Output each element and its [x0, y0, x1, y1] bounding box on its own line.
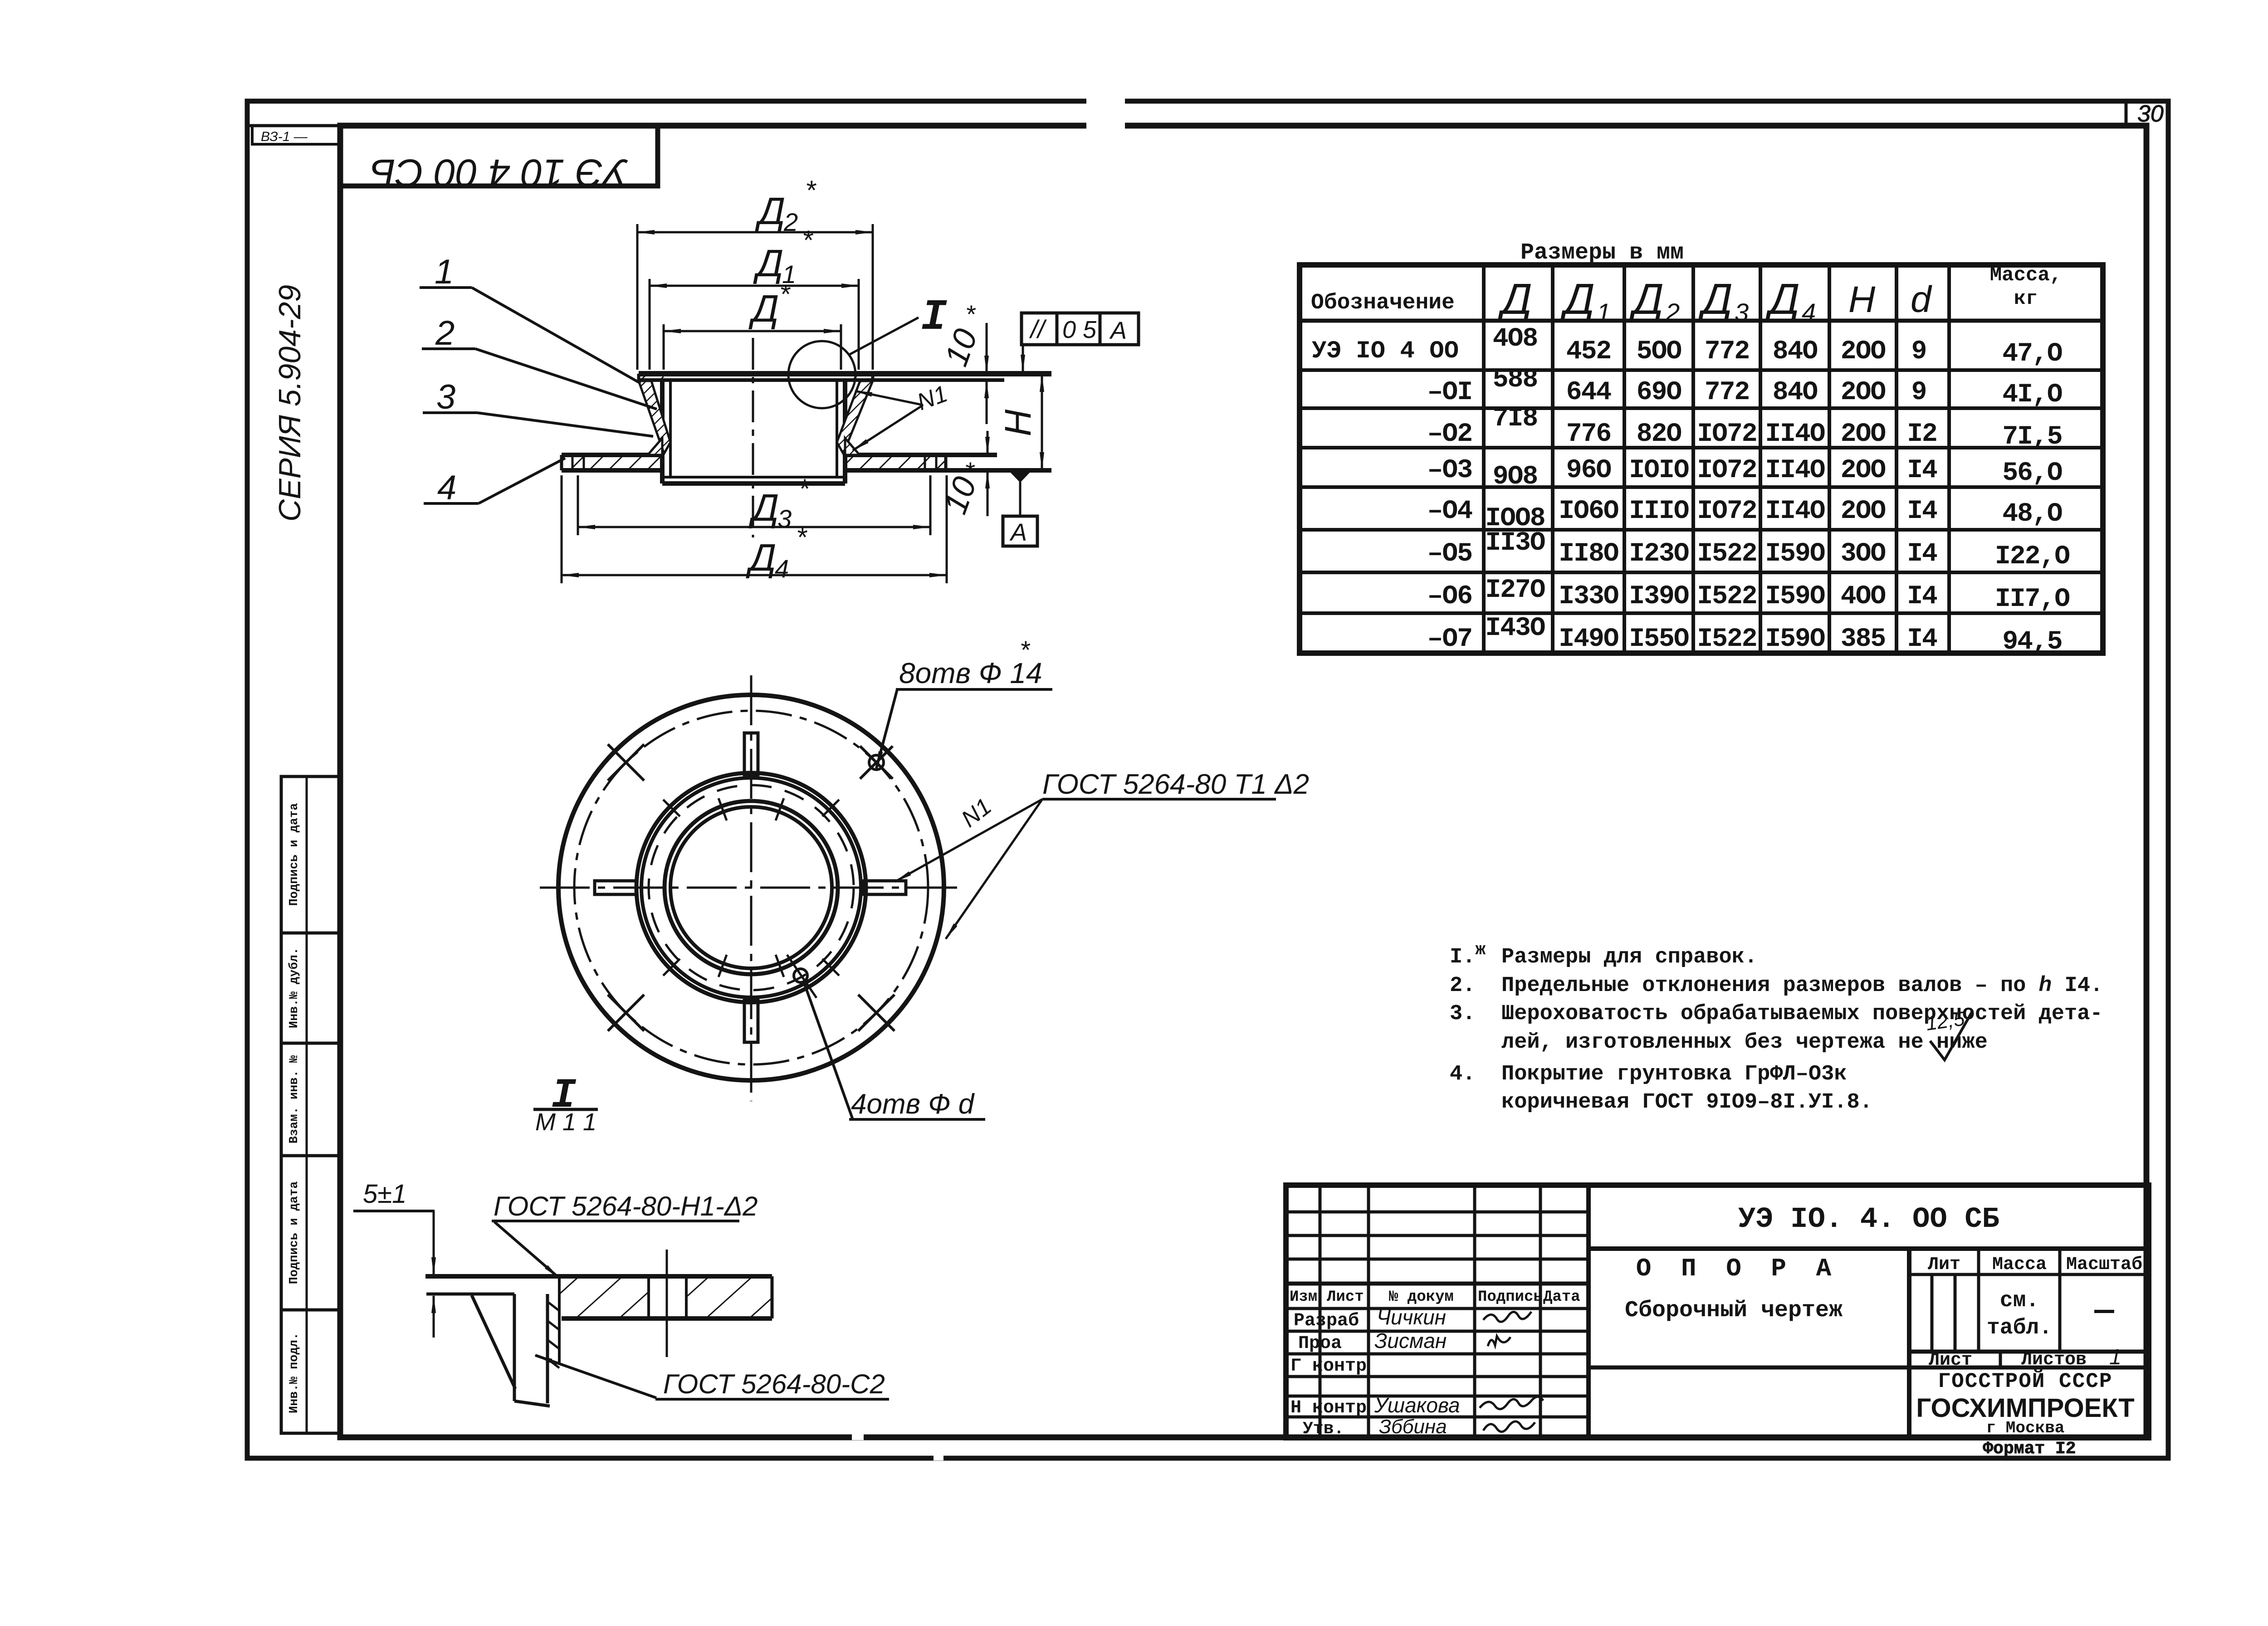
svg-text:—: — [2094, 1293, 2114, 1330]
svg-text:*: * [802, 225, 813, 255]
svg-text://: // [1029, 315, 1047, 343]
svg-text:2.: 2. [1450, 974, 1475, 998]
svg-text:2ОО: 2ОО [1841, 456, 1886, 485]
svg-text:Обозначение: Обозначение [1311, 291, 1455, 315]
svg-text:*: * [805, 175, 816, 205]
svg-text:I2: I2 [1907, 420, 1937, 449]
svg-text:А: А [1109, 317, 1127, 344]
svg-text:772: 772 [1705, 337, 1749, 366]
svg-text:Лист: Лист [1929, 1350, 1972, 1371]
svg-text:Д: Д [753, 242, 783, 284]
svg-text:I.ж: I.ж [1450, 940, 1486, 969]
svg-text:2: 2 [783, 208, 798, 236]
svg-text:1: 1 [2109, 1345, 2121, 1369]
svg-text:2ОО: 2ОО [1841, 337, 1886, 366]
svg-text:I522: I522 [1697, 625, 1756, 654]
svg-text:2: 2 [1665, 298, 1680, 327]
svg-text:I43О: I43О [1485, 614, 1545, 643]
svg-text:II7,О: II7,О [1995, 585, 2069, 614]
svg-text:Н: Н [1848, 279, 1876, 320]
svg-text:Сборочный чертеж: Сборочный чертеж [1625, 1298, 1843, 1323]
svg-text:84О: 84О [1773, 378, 1818, 407]
svg-text:Зббина: Зббина [1379, 1416, 1447, 1438]
svg-text:Предельные отклонения размеров: Предельные отклонения размеров валов – п… [1501, 972, 2103, 998]
svg-text:7I8: 7I8 [1493, 404, 1537, 434]
svg-text:4: 4 [775, 554, 789, 583]
svg-text:СЕРИЯ 5.904-29: СЕРИЯ 5.904-29 [273, 285, 307, 522]
svg-text:II8О: II8О [1559, 539, 1618, 569]
svg-text:Зисман: Зисман [1374, 1329, 1447, 1353]
svg-text:4О8: 4О8 [1493, 324, 1537, 354]
svg-text:кг: кг [2014, 288, 2038, 310]
svg-text:2ОО: 2ОО [1841, 420, 1886, 449]
svg-text:47,О: 47,О [2002, 339, 2062, 369]
svg-text:УЭ 10 4 00 СБ: УЭ 10 4 00 СБ [370, 151, 628, 195]
svg-text:–О3: –О3 [1427, 456, 1472, 485]
svg-text:I59О: I59О [1765, 539, 1824, 569]
svg-text:*: * [1020, 635, 1031, 664]
svg-text:I27О: I27О [1485, 576, 1545, 605]
svg-text:IОIО: IОIО [1629, 456, 1688, 485]
svg-text:82О: 82О [1637, 420, 1681, 449]
svg-text:Проа: Проа [1298, 1333, 1342, 1354]
svg-text:0 5: 0 5 [1062, 316, 1097, 343]
svg-text:48,О: 48,О [2002, 499, 2062, 529]
svg-text:d: d [1911, 279, 1932, 320]
svg-text:I4: I4 [1907, 456, 1937, 485]
svg-text:N1: N1 [914, 381, 951, 415]
svg-text:Покрытие грунтовка ГрФЛ–О3к: Покрытие грунтовка ГрФЛ–О3к [1501, 1062, 1847, 1086]
svg-text:10: 10 [937, 472, 984, 519]
svg-text:табл.: табл. [1987, 1316, 2052, 1340]
svg-text:Д: Д [1629, 275, 1664, 323]
svg-text:Чичкин: Чичкин [1377, 1305, 1446, 1329]
svg-text:Инв.№ дубл.: Инв.№ дубл. [288, 947, 301, 1028]
svg-text:2ОО: 2ОО [1841, 378, 1886, 407]
svg-text:1: 1 [435, 253, 454, 291]
svg-text:4: 4 [1802, 298, 1816, 327]
svg-text:I23О: I23О [1629, 539, 1688, 569]
svg-text:Д: Д [1698, 275, 1733, 323]
svg-text:Размеры для справок.: Размеры для справок. [1501, 945, 1757, 969]
svg-text:9: 9 [1911, 378, 1926, 407]
svg-text:9: 9 [1911, 337, 1926, 366]
svg-text:Формат I2: Формат I2 [1983, 1439, 2076, 1459]
svg-text:см.: см. [2000, 1289, 2039, 1313]
svg-text:*: * [798, 474, 810, 504]
svg-text:4.: 4. [1450, 1062, 1475, 1086]
svg-text:Шероховатость обрабатываемых п: Шероховатость обрабатываемых поверхносте… [1501, 1002, 2103, 1026]
svg-text:№ докум: № докум [1389, 1289, 1454, 1306]
svg-text:IО6О: IО6О [1559, 497, 1618, 526]
svg-text:Размеры в мм: Размеры в мм [1520, 240, 1684, 266]
svg-text:*: * [964, 457, 975, 485]
svg-text:Разраб: Разраб [1294, 1311, 1359, 1331]
svg-text:Д: Д [746, 536, 776, 579]
svg-text:Масса,: Масса, [1990, 264, 2062, 287]
svg-text:ГОСТ 5264-80 Т1 Δ2: ГОСТ 5264-80 Т1 Δ2 [1042, 769, 1309, 800]
svg-text:II4О: II4О [1765, 497, 1824, 526]
svg-text:ГОСТ 5264-80-Н1-Δ2: ГОСТ 5264-80-Н1-Δ2 [494, 1191, 758, 1221]
svg-text:9О8: 9О8 [1493, 462, 1537, 492]
svg-text:5ОО: 5ОО [1637, 337, 1681, 366]
svg-text:М 1 1: М 1 1 [535, 1108, 596, 1136]
svg-text:Д: Д [748, 486, 779, 529]
svg-text:385: 385 [1841, 625, 1885, 654]
svg-text:I4: I4 [1907, 539, 1937, 569]
svg-text:Н: Н [997, 409, 1039, 436]
svg-text:84О: 84О [1773, 337, 1818, 366]
svg-text:I59О: I59О [1765, 625, 1824, 654]
svg-text:772: 772 [1705, 378, 1749, 407]
svg-text:30: 30 [2137, 101, 2164, 127]
svg-text:3: 3 [436, 378, 455, 416]
svg-text:I59О: I59О [1765, 582, 1824, 611]
svg-text:3: 3 [1735, 298, 1749, 327]
svg-text:Подпись и дата: Подпись и дата [288, 1182, 301, 1284]
svg-text:4I,О: 4I,О [2002, 380, 2062, 410]
svg-text:96О: 96О [1566, 456, 1611, 485]
svg-text:I522: I522 [1697, 539, 1756, 569]
svg-text:Листов: Листов [2021, 1350, 2087, 1370]
svg-text:ГОСТ 5264-80-С2: ГОСТ 5264-80-С2 [663, 1369, 885, 1399]
svg-text:коричневая ГОСТ 9IО9–8I.УI.8.: коричневая ГОСТ 9IО9–8I.УI.8. [1501, 1090, 1872, 1114]
svg-text:56,О: 56,О [2002, 459, 2062, 488]
svg-text:Ушакова: Ушакова [1374, 1393, 1460, 1417]
svg-text:Д: Д [755, 190, 785, 232]
svg-text:О П О Р А: О П О Р А [1636, 1254, 1838, 1283]
svg-text:Д: Д [748, 287, 779, 330]
svg-text:Д: Д [1560, 275, 1595, 323]
svg-text:*: * [779, 279, 791, 309]
svg-text:IО72: IО72 [1697, 497, 1756, 526]
svg-text:ВЗ-1 —: ВЗ-1 — [261, 129, 308, 144]
svg-text:–О4: –О4 [1427, 497, 1473, 526]
svg-text:N1: N1 [957, 793, 997, 833]
svg-text:I39О: I39О [1629, 582, 1688, 611]
svg-text:1: 1 [1597, 298, 1611, 327]
svg-text:5±1: 5±1 [363, 1179, 406, 1209]
svg-text:Лит: Лит [1928, 1255, 1960, 1275]
svg-text:*: * [965, 300, 976, 328]
svg-text:ГОСХИМПРОЕКТ: ГОСХИМПРОЕКТ [1916, 1393, 2134, 1423]
svg-text:–О2: –О2 [1427, 420, 1472, 449]
svg-text:Д: Д [1497, 275, 1532, 323]
svg-text:4: 4 [437, 469, 456, 507]
svg-text:Подпись и дата: Подпись и дата [288, 803, 301, 906]
svg-text:I4: I4 [1907, 497, 1937, 526]
svg-text:I: I [921, 293, 947, 342]
svg-text:2: 2 [435, 314, 455, 352]
svg-text:IIIО: IIIО [1629, 497, 1688, 526]
svg-text:I33О: I33О [1559, 582, 1618, 611]
svg-text:644: 644 [1566, 378, 1612, 407]
svg-text:3ОО: 3ОО [1841, 539, 1886, 569]
svg-text:IО72: IО72 [1697, 456, 1756, 485]
svg-text:–О6: –О6 [1427, 582, 1472, 611]
svg-text:Г контр: Г контр [1290, 1356, 1367, 1377]
svg-text:II4О: II4О [1765, 420, 1824, 449]
svg-text:I22,О: I22,О [1995, 542, 2069, 571]
svg-text:*: * [796, 522, 807, 552]
svg-text:II4О: II4О [1765, 456, 1824, 485]
svg-text:588: 588 [1493, 365, 1537, 395]
svg-text:Взам. инв. №: Взам. инв. № [288, 1055, 301, 1143]
svg-text:А: А [1009, 519, 1027, 546]
svg-text:Масса: Масса [1992, 1255, 2047, 1275]
svg-text:УЭ IО 4 ОО: УЭ IО 4 ОО [1312, 337, 1459, 365]
svg-text:Н контр: Н контр [1290, 1398, 1367, 1418]
svg-text:IО72: IО72 [1697, 420, 1756, 449]
svg-text:452: 452 [1566, 337, 1611, 366]
svg-text:4отв Ф d: 4отв Ф d [851, 1089, 975, 1120]
svg-text:Утв.: Утв. [1303, 1419, 1344, 1439]
svg-text:I4: I4 [1907, 582, 1937, 611]
svg-text:–О7: –О7 [1427, 625, 1472, 654]
svg-text:776: 776 [1566, 420, 1611, 449]
svg-text:–О5: –О5 [1427, 539, 1472, 569]
svg-text:лей, изготовленных без чертежа: лей, изготовленных без чертежа не ниже [1501, 1030, 1988, 1055]
svg-text:Масштаб: Масштаб [2066, 1255, 2142, 1275]
svg-text:II3О: II3О [1485, 528, 1545, 558]
svg-text:94,5: 94,5 [2002, 627, 2062, 657]
svg-text:7I,5: 7I,5 [2002, 422, 2062, 452]
svg-text:Д: Д [1765, 275, 1800, 323]
svg-text:4ОО: 4ОО [1841, 582, 1886, 611]
svg-text:3.: 3. [1450, 1002, 1475, 1026]
svg-text:Подпись: Подпись [1478, 1289, 1543, 1306]
svg-text:3: 3 [777, 504, 792, 533]
svg-text:УЭ IО. 4. ОО СБ: УЭ IО. 4. ОО СБ [1738, 1203, 1999, 1236]
svg-text:I49О: I49О [1559, 625, 1618, 654]
svg-text:Инв.№ подл.: Инв.№ подл. [288, 1333, 301, 1413]
svg-text:ГОССТРОЙ СССР: ГОССТРОЙ СССР [1938, 1369, 2113, 1393]
svg-text:2ОО: 2ОО [1841, 497, 1886, 526]
svg-text:Лист: Лист [1327, 1289, 1364, 1306]
svg-text:I55О: I55О [1629, 625, 1688, 654]
svg-text:Изм: Изм [1290, 1289, 1317, 1306]
svg-text:69О: 69О [1637, 378, 1681, 407]
svg-text:–ОI: –ОI [1427, 378, 1472, 407]
svg-text:I4: I4 [1907, 625, 1937, 654]
svg-text:Дата: Дата [1543, 1289, 1580, 1306]
svg-text:I522: I522 [1697, 582, 1756, 611]
